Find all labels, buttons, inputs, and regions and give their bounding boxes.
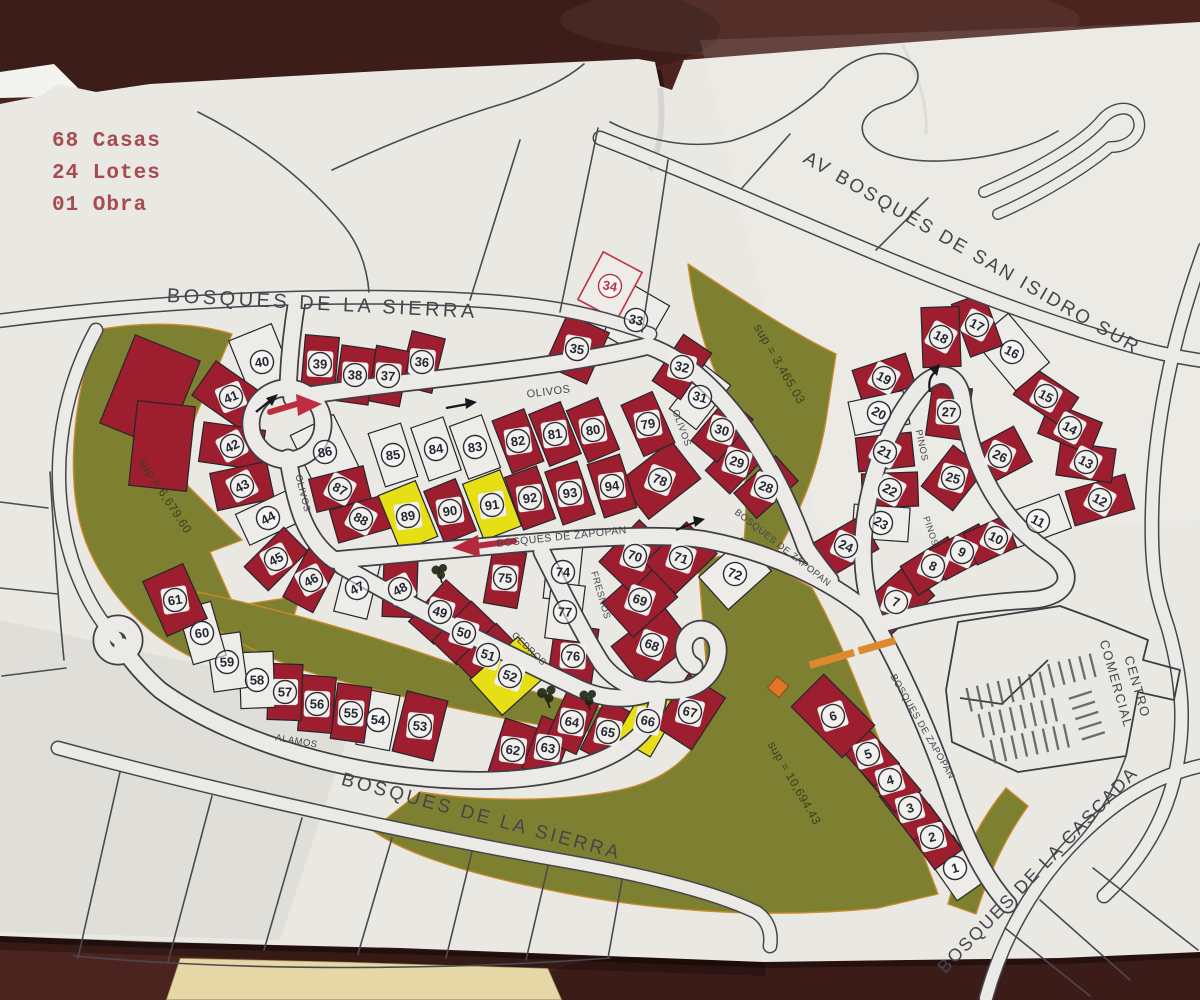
lot-label-65: 65	[593, 717, 623, 747]
lot-number: 59	[219, 654, 234, 670]
lot-label-81: 81	[540, 419, 570, 449]
lot-label-82: 82	[503, 426, 533, 456]
lot-label-57: 57	[272, 679, 298, 705]
legend-line-lotes: 24 Lotes	[52, 162, 161, 185]
lot-number: 63	[540, 740, 557, 757]
lot-label-91: 91	[477, 490, 507, 520]
lot-number: 75	[497, 570, 512, 586]
lot-number: 55	[343, 705, 358, 721]
lot-number: 82	[510, 433, 527, 450]
lot-label-55: 55	[337, 699, 364, 726]
lot-number: 66	[639, 712, 656, 730]
lot-number: 94	[604, 478, 621, 495]
lot-number: 77	[557, 604, 572, 620]
lot-label-39: 39	[307, 351, 334, 378]
lot-label-74: 74	[551, 560, 575, 584]
lot-label-58: 58	[245, 668, 268, 691]
lot-number: 91	[484, 497, 501, 514]
lot-number: 56	[310, 696, 325, 711]
lot-number: 90	[442, 502, 459, 519]
lot-label-38: 38	[341, 361, 368, 388]
lot-label-76: 76	[559, 642, 586, 669]
lot-number: 53	[412, 718, 428, 734]
lot-label-79: 79	[633, 409, 663, 439]
lot-number: 93	[562, 485, 578, 502]
lot-label-80: 80	[578, 415, 608, 445]
lot-number: 36	[414, 354, 430, 370]
lot-number: 81	[547, 425, 564, 442]
lot-number: 60	[194, 625, 210, 642]
lot-number: 80	[585, 421, 602, 438]
lot-label-27: 27	[935, 398, 962, 425]
lot-number: 37	[380, 368, 396, 384]
lot-label-61: 61	[160, 585, 190, 615]
lot-number: 38	[347, 367, 362, 383]
lot-label-77: 77	[553, 600, 577, 624]
lot-label-62: 62	[498, 735, 527, 764]
lot-label-75: 75	[491, 564, 519, 592]
lot-label-35: 35	[562, 334, 592, 364]
lot-number: 40	[254, 353, 271, 370]
lot-number: 86	[317, 443, 334, 460]
lot-number: 57	[278, 684, 293, 699]
legend-line-casas: 68 Casas	[52, 130, 161, 153]
lot-number: 85	[385, 447, 401, 464]
lot-number: 39	[313, 356, 328, 371]
lot-number: 62	[505, 742, 521, 759]
lot-label-63: 63	[533, 733, 563, 763]
lot-number: 33	[627, 311, 644, 329]
lot-number: 89	[400, 507, 417, 524]
lot-number: 58	[250, 672, 265, 687]
lot-label-93: 93	[555, 478, 584, 507]
lot-number: 35	[569, 340, 586, 357]
lot-number: 65	[599, 723, 616, 740]
legend: 68 Casas 24 Lotes 01 Obra	[52, 130, 161, 217]
lot-label-66: 66	[633, 706, 664, 737]
lot-label-59: 59	[215, 650, 239, 674]
lot-number: 76	[565, 648, 580, 664]
photo-of-site-plan: 68 Casas 24 Lotes 01 Obra BOSQUES DE LA …	[0, 0, 1200, 1000]
lot-label-90: 90	[435, 496, 465, 526]
legend-line-obra: 01 Obra	[52, 194, 147, 217]
lot-label-94: 94	[597, 471, 626, 500]
lot-number: 83	[467, 439, 483, 456]
lot-label-37: 37	[374, 362, 402, 390]
lot-label-56: 56	[304, 691, 331, 718]
lot-label-53: 53	[406, 712, 434, 740]
lot-number: 92	[522, 490, 538, 507]
lot-number: 74	[555, 564, 571, 580]
lot-number: 54	[370, 712, 386, 728]
lot-label-64: 64	[557, 707, 587, 737]
lot-label-36: 36	[408, 348, 436, 376]
lot-label-89: 89	[393, 501, 423, 531]
lot-number: 27	[941, 404, 956, 420]
lot-label-92: 92	[515, 483, 544, 512]
lot-number: 84	[428, 441, 445, 458]
lot-number: 61	[167, 591, 184, 608]
lot-number: 79	[640, 415, 657, 432]
